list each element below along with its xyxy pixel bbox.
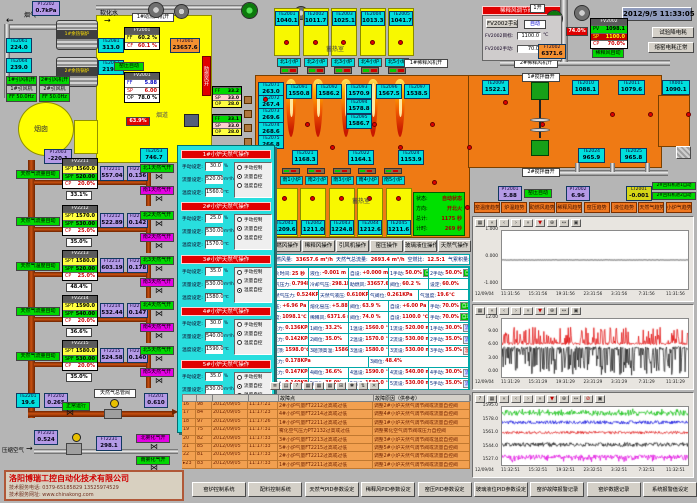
- table-cell: 手动:70.0%自动: [429, 312, 469, 322]
- radio-1[interactable]: [237, 165, 242, 170]
- radio-3[interactable]: [237, 340, 242, 345]
- y-axis-label: 6.00: [475, 342, 498, 347]
- popup-field-input[interactable]: 35.0: [205, 372, 223, 381]
- chart-toolbar-icon-‹[interactable]: ‹: [499, 307, 509, 315]
- fv2001-controller[interactable]: FV2001FF5.88SP6.00OP78.0 %: [124, 72, 160, 103]
- trend-button-5[interactable]: 窑压趋势: [584, 202, 610, 213]
- radio-3[interactable]: [237, 183, 242, 188]
- alarm-dot: [305, 122, 310, 127]
- FV2215-controller[interactable]: FV2215SPT1580.0SPF530.00CP20.0%: [62, 340, 98, 371]
- trend-button-1[interactable]: 窑温度趋势: [474, 202, 500, 213]
- radio-row[interactable]: 流量自控: [235, 277, 271, 286]
- mode-badge[interactable]: 流控: [463, 324, 469, 332]
- alarm-row[interactable]: 22812012/09/0511:17:332#小炉气量FT2212过高或过低调…: [182, 452, 470, 460]
- feeder-controller[interactable]: FF33.1SP33.0OP28.0: [212, 114, 242, 136]
- cell-value: 63.9 %: [362, 304, 380, 309]
- mode-badge[interactable]: 流控: [463, 369, 469, 377]
- radio-row[interactable]: 手动控制: [235, 215, 271, 224]
- field-unit: ℃: [543, 33, 548, 38]
- alarm-dot: [432, 180, 437, 185]
- radio-2[interactable]: [237, 384, 242, 389]
- param-name: FF: [215, 116, 220, 122]
- table-row: 4压力:0.147KPa4阀位:36.6%4温设:1590.0 ℃4流设:540…: [269, 367, 469, 378]
- bottom-button-2[interactable]: 配料控制系统: [248, 482, 302, 497]
- radio-row[interactable]: 手动控制: [235, 320, 271, 329]
- radio-2[interactable]: [237, 331, 242, 336]
- param-value: 33.0: [228, 123, 239, 129]
- tag-TE2091: TE20911550.8: [286, 84, 312, 99]
- alarm-row[interactable]: 21852012/09/0511:17:335#小炉气量FT2215过高或过低调…: [182, 444, 470, 452]
- tag-value: 532.44: [101, 310, 123, 317]
- radio-3[interactable]: [237, 235, 242, 240]
- cell-label: 2手动:: [430, 336, 444, 343]
- popup-field-input[interactable]: 35.0: [205, 267, 223, 276]
- south-gas-valve[interactable]: ⋈: [155, 242, 163, 250]
- chart-toolbar-icon-▦[interactable]: ▦: [475, 219, 485, 227]
- table-cell: 2阀位:35.0%: [309, 334, 349, 344]
- radio-2[interactable]: [237, 174, 242, 179]
- tag-value: 1168.3: [293, 157, 317, 164]
- radio-1[interactable]: [237, 217, 242, 222]
- burner-indicator[interactable]: [307, 168, 325, 174]
- cell-label: 阀位:: [350, 314, 361, 321]
- burner-indicator[interactable]: [282, 168, 300, 174]
- param-name: CP: [65, 318, 71, 325]
- burner-indicator[interactable]: [334, 67, 352, 74]
- alarm-toolbar-icon-?[interactable]: ?: [292, 382, 302, 390]
- cell-value: 50.0%: [445, 271, 462, 276]
- atomize-north-valve[interactable]: ⋈: [150, 443, 158, 451]
- table-cell: 气阀位:0.261KPa: [369, 290, 419, 300]
- mode-badge[interactable]: 流控: [463, 380, 469, 388]
- popup-section-title: 5#小炉天然气操作: [181, 360, 271, 369]
- radio-row[interactable]: 流量自控: [235, 382, 271, 391]
- alarm-toolbar-icon-≣[interactable]: ≣: [270, 382, 280, 390]
- table-cell: 2手动:35.0%流控: [429, 334, 469, 344]
- x-axis-tick: 7:32:51: [639, 467, 655, 472]
- popup-section-title: 3#小炉天然气操作: [181, 255, 271, 264]
- mode-badge[interactable]: 自动: [460, 313, 469, 321]
- popup-field-input[interactable]: 530.00: [205, 385, 223, 394]
- cell-label: 2阀位:: [310, 336, 324, 343]
- south-gas-valve[interactable]: ⋈: [155, 377, 163, 385]
- y-axis-label: 1527.0: [475, 457, 498, 462]
- chart-toolbar-icon-▣[interactable]: ▣: [571, 219, 581, 227]
- tag-TE2092: TE20921586.2: [316, 84, 342, 99]
- tag-value: 1522.1: [483, 87, 508, 94]
- popup-field-input[interactable]: 530.00: [205, 280, 223, 289]
- trend-button-2[interactable]: 炉温趋势: [501, 202, 527, 213]
- alarm-row[interactable]: ▸23832012/09/0511:17:331#小炉气量FT2211过高或过低…: [182, 461, 470, 469]
- cell-label: 1阀位:: [310, 325, 324, 332]
- tag-TE2002: TE20021011.7: [304, 11, 328, 26]
- chart-toolbar-icon-⊕[interactable]: ⊕: [547, 307, 557, 315]
- cell-value: 298.1KPa: [332, 282, 349, 287]
- chart-toolbar-icon-⊘[interactable]: ⊘: [583, 395, 593, 403]
- burner-indicator[interactable]: [280, 67, 298, 74]
- mode-badge[interactable]: 自动: [460, 302, 469, 310]
- power-normal-button[interactable]: 熔窑电耗正常: [648, 42, 694, 53]
- alarm-dot: [396, 196, 401, 201]
- op-button-6[interactable]: 天然气操作: [438, 240, 471, 252]
- tag-value: 298.1: [97, 443, 121, 450]
- south-gas-valve[interactable]: ⋈: [155, 195, 163, 203]
- indicator-red: [398, 69, 404, 72]
- chimney-duct: [74, 120, 98, 154]
- chart-toolbar-icon-«[interactable]: «: [499, 395, 509, 403]
- chart-toolbar-icon-▣[interactable]: ▣: [595, 395, 605, 403]
- radio-row[interactable]: 温度自控: [235, 338, 271, 347]
- field-label: FV2002目标:: [485, 33, 513, 39]
- bottom-button-1[interactable]: 窑炉控制系统: [192, 482, 246, 497]
- stirrer-blade: [530, 128, 550, 132]
- alarm-toolbar-icon-▦[interactable]: ▦: [303, 382, 313, 390]
- alarm-toolbar-icon-⊞[interactable]: ⊞: [336, 382, 346, 390]
- alarm-row[interactable]: 16982012/09/0511:17:212#小炉气量FT2212过高或过低调…: [182, 402, 470, 410]
- FV2211-controller[interactable]: FV2211SPT1560.0SPF520.00CP20.0%: [62, 158, 98, 189]
- burner-indicator[interactable]: [333, 168, 351, 174]
- south-gas-valve[interactable]: ⋈: [155, 287, 163, 295]
- controller-row: SPT1590.0: [63, 302, 97, 310]
- table-cell: 熔化窑压:+5.88 Pa: [309, 301, 349, 311]
- alarm-cell: 11:17:33: [248, 444, 278, 451]
- cell-value: 530.00 m³/h: [405, 337, 429, 342]
- cell-value: 0.794KPa: [292, 282, 309, 287]
- gas-main-valve[interactable]: ⋈: [66, 409, 74, 417]
- company-phone: 技术服务电话: 0379-65185829 13525974529: [9, 484, 179, 491]
- tag-TX001: TX0011090.1: [662, 80, 690, 95]
- mini-button[interactable]: [676, 146, 691, 159]
- radio-label: 温度自控: [244, 287, 262, 293]
- alarm-toolbar-icon-▦[interactable]: ▦: [325, 382, 335, 390]
- field-input[interactable]: 1100.0: [517, 32, 541, 40]
- radio-1[interactable]: [237, 270, 242, 275]
- furnace-throat: [658, 95, 690, 147]
- chart-toolbar-icon-‹[interactable]: ‹: [511, 395, 521, 403]
- burner-indicator[interactable]: [384, 168, 402, 174]
- feeder-controller[interactable]: FF33.2SP33.0OP28.0: [212, 86, 242, 108]
- furnace-status-line: 助燃风量:33657.6 m³/h天然气总流量:2693.4 m³/h空燃比:1…: [268, 254, 470, 265]
- table-cell: 4阀位:36.6%: [309, 368, 349, 378]
- chart-toolbar-icon-▼[interactable]: ▼: [547, 395, 557, 403]
- alarm-toolbar-icon-✱[interactable]: ✱: [347, 382, 357, 390]
- controller-row: SPF530.00: [63, 220, 97, 228]
- param-name: CP: [65, 363, 71, 370]
- param-name: OP: [127, 95, 134, 102]
- bottom-button-9[interactable]: 系统报警值设定: [643, 482, 697, 497]
- chart-toolbar-icon-«[interactable]: «: [487, 219, 497, 227]
- radio-2[interactable]: [237, 279, 242, 284]
- tag-TE2003: TE20031025.1: [332, 11, 356, 26]
- burner-indicator[interactable]: [358, 168, 376, 174]
- popup-field-label: 温度设定:: [182, 241, 206, 248]
- cell-value: 1560.0 ℃: [365, 326, 389, 331]
- alarm-toolbar-icon-▤[interactable]: ▤: [281, 382, 291, 390]
- radio-row[interactable]: 手动控制: [235, 163, 271, 172]
- burner-gas-popup: 1#小炉天然气操作手动设定:30.0%流量设定:520.00m³/h温度设定:1…: [177, 145, 275, 433]
- alarm-cell: 75: [196, 427, 212, 434]
- cell-value: 60.2 %: [402, 282, 420, 287]
- param-value: 60.2 %: [138, 35, 157, 42]
- cell-value: 0.147KPa: [285, 370, 309, 375]
- controller-row: OP28.0: [213, 100, 241, 107]
- tag-value: 1538.5: [405, 91, 429, 98]
- chart-toolbar-icon-⊕[interactable]: ⊕: [547, 219, 557, 227]
- cell-value: 1580.0 ℃: [365, 348, 389, 353]
- north-port-label: 北4小炉: [358, 58, 382, 67]
- company-web[interactable]: 技术服务网址: www.chinakong.com: [9, 491, 179, 498]
- chart-toolbar-icon-↔[interactable]: ↔: [559, 219, 569, 227]
- cell-label: 阀位:: [390, 281, 401, 288]
- popup-field-label: 温度设定:: [182, 346, 206, 353]
- popup-field-input[interactable]: 1590.0: [205, 345, 223, 354]
- tag-FT2214: FT2214532.44: [100, 303, 124, 318]
- cell-label: 设定:: [430, 281, 441, 288]
- chart-toolbar-icon-»[interactable]: »: [523, 219, 533, 227]
- radio-row[interactable]: 温度自控: [235, 181, 271, 190]
- trend-plot-2[interactable]: [501, 318, 689, 378]
- param-name: SPT: [65, 166, 74, 173]
- bottom-button-7[interactable]: 窑炉故障报警记录: [530, 482, 584, 497]
- table-cell: 阀位:74.0 %: [349, 312, 389, 322]
- trend-button-7[interactable]: 天然气趋势: [638, 202, 664, 213]
- bottom-button-8[interactable]: 窑炉数据记录: [587, 482, 641, 497]
- popup-field-label: 流量设定:: [182, 386, 206, 393]
- cell-label: 气温度:: [420, 292, 436, 299]
- mode-badge[interactable]: 温控: [463, 347, 469, 355]
- north-gas-valve[interactable]: ⋈: [155, 173, 163, 181]
- chart-toolbar-icon-↔[interactable]: ↔: [571, 395, 581, 403]
- tag-TE2095: TE20951586.7: [346, 114, 372, 129]
- regenerator-south-label: 蓄热室: [352, 196, 370, 205]
- tag-value: 1211.0: [302, 227, 324, 234]
- radio-row[interactable]: 手动控制: [235, 373, 271, 382]
- mode-badge[interactable]: 自动: [463, 269, 469, 277]
- x-axis-tick: 19:31:56: [556, 291, 575, 296]
- status-seg-value: 12.5:1: [427, 257, 445, 263]
- popup-field-input[interactable]: 1560.0: [205, 188, 223, 197]
- radio-row[interactable]: 温度自控: [235, 286, 271, 295]
- status-row: 状态:自动状态: [416, 194, 462, 204]
- tag-value: 746.7: [141, 155, 167, 162]
- controller-row: FF33.2: [213, 87, 241, 94]
- cell-label: 1温设:: [350, 325, 364, 332]
- chart-toolbar-icon-›[interactable]: ›: [523, 395, 533, 403]
- param-value: 540.00: [76, 311, 95, 318]
- table-row: 温度:1098.1℃稀释风:6371.6 m³/h阀位:74.0 %自设:110…: [269, 311, 469, 322]
- alarm-toolbar-icon-▦[interactable]: ▦: [314, 382, 324, 390]
- popup-field-input[interactable]: 30.0: [205, 162, 223, 171]
- north-gas-valve[interactable]: ⋈: [155, 265, 163, 273]
- controller-row: SPF540.00: [63, 310, 97, 318]
- cell-value: 0.136KPa: [285, 326, 309, 331]
- trend-button-3[interactable]: 助燃风趋势: [529, 202, 555, 213]
- op-button-5[interactable]: 玻璃液位操作: [404, 240, 437, 252]
- alarm-cell: 调整5#小炉天然气调节阀或流量自控阀: [373, 444, 470, 451]
- tag-TE2024: TE20241153.9: [398, 150, 424, 165]
- chart-toolbar-icon-‹[interactable]: ‹: [499, 219, 509, 227]
- radio-3[interactable]: [237, 288, 242, 293]
- tag-value: 1011.7: [305, 18, 327, 25]
- chart-toolbar-icon-▦[interactable]: ▦: [487, 395, 497, 403]
- status-label: 状态:: [416, 194, 428, 204]
- op-button-3[interactable]: 引风机操作: [336, 240, 369, 252]
- alarm-cell: 83: [196, 461, 212, 468]
- popup-field-input[interactable]: 1570.0: [205, 240, 223, 249]
- fv2002-manual-button[interactable]: FV2002手动: [486, 19, 518, 28]
- alarm-cell: 84: [196, 410, 212, 417]
- tag-label: TE2074: [259, 123, 283, 129]
- cell-value: 1098.1℃: [282, 315, 306, 320]
- table-cell: 3压力:0.178KPa: [269, 357, 369, 367]
- butterfly-valve-icon[interactable]: [110, 399, 119, 408]
- bottom-button-5[interactable]: 窑压PID参数设定: [418, 482, 472, 497]
- bottom-button-3[interactable]: 天然气PID参数设定: [305, 482, 359, 497]
- popup-field-input[interactable]: 1580.0: [205, 293, 223, 302]
- tag-value: 965.9: [579, 155, 604, 162]
- fan-icon: [174, 4, 189, 19]
- gas-main-riser: [28, 160, 35, 418]
- test-power-button[interactable]: 试验降电耗: [652, 27, 694, 38]
- radio-row[interactable]: 流量自控: [235, 224, 271, 233]
- param-value: 33.1: [228, 116, 239, 122]
- table-row: 3碹顶:1598.0℃3碹顶高温:1586.7℃3温设:1580.0 ℃3流设:…: [269, 345, 469, 356]
- chart-toolbar-icon-»[interactable]: »: [535, 395, 545, 403]
- controller-row: FF33.1: [213, 115, 241, 122]
- chart-toolbar-icon-⊕[interactable]: ⊕: [559, 395, 569, 403]
- popup-field-input[interactable]: 530.00: [205, 227, 223, 236]
- radio-row[interactable]: 流量自控: [235, 329, 271, 338]
- popup-field-label: 流量设定:: [182, 228, 206, 235]
- cell-label: 3流设:: [390, 347, 404, 354]
- trend-button-8[interactable]: 小炉气趋势: [666, 202, 692, 213]
- tag-value: 1550.8: [287, 91, 311, 98]
- param-value: 1580.0: [76, 348, 95, 355]
- radio-1[interactable]: [237, 322, 242, 327]
- param-value: 5.88: [145, 80, 157, 87]
- radio-2[interactable]: [237, 226, 242, 231]
- alarm-row[interactable]: 19752012/09/0511:17:31雾化空气压力PT2132过高或过低调…: [182, 427, 470, 435]
- trend-button-4[interactable]: 稀释风趋势: [556, 202, 582, 213]
- tag-value: 19.6: [17, 400, 39, 407]
- datetime-display: 2012/9/5 11:33:05: [622, 7, 692, 21]
- cell-label: 天然气液压:: [320, 292, 346, 299]
- table-row: 2压力:0.142KPa2阀位:35.0%2温设:1570.0 ℃2流设:530…: [269, 333, 469, 344]
- indicator-red: [316, 170, 321, 172]
- chart-toolbar-icon-▣[interactable]: ▣: [571, 307, 581, 315]
- alarm-toolbar-icon-⇅[interactable]: ⇅: [358, 382, 368, 390]
- table-cell: 天然气液压:0.610KPa: [319, 290, 369, 300]
- alarm-toolbar-icon-✕[interactable]: ✕: [369, 382, 379, 390]
- chart-toolbar-icon-›[interactable]: ›: [511, 307, 521, 315]
- popup-field-input[interactable]: 30.0: [205, 319, 223, 328]
- FV2213-controller[interactable]: FV2213SPT1580.0SPF520.00CP25.0%: [62, 250, 98, 281]
- table-cell: 天然气压力:0.524KPa: [269, 290, 319, 300]
- north-gas-valve[interactable]: ⋈: [155, 220, 163, 228]
- x-axis-tick: 11:32:51: [666, 467, 685, 472]
- trend-plot-1[interactable]: [501, 230, 689, 290]
- chart-toolbar-icon-›[interactable]: ›: [511, 219, 521, 227]
- north-gas-valve[interactable]: ⋈: [155, 355, 163, 363]
- radio-row[interactable]: 温度自控: [235, 233, 271, 242]
- north-port-label: 北1小炉: [277, 58, 301, 67]
- controller-row: CP25.0%: [63, 272, 97, 280]
- chart-toolbar-icon-▼[interactable]: ▼: [535, 219, 545, 227]
- bottom-button-4[interactable]: 稀释风PID参数设定: [361, 482, 415, 497]
- x-axis-tick: 19:32:51: [556, 467, 575, 472]
- radio-1[interactable]: [237, 375, 242, 380]
- controller-row: FF5.88: [125, 79, 159, 87]
- south-gas-valve[interactable]: ⋈: [155, 332, 163, 340]
- popup-field-input[interactable]: 520.00: [205, 175, 223, 184]
- status-label: 总计:: [416, 214, 428, 224]
- alarm-row[interactable]: 18972012/09/0511:17:261#小炉气量FT2211过高或过低调…: [182, 419, 470, 427]
- gas-auto-label: 天然气流量自动: [16, 352, 60, 361]
- op-button-2[interactable]: 稀释风操作: [302, 240, 335, 252]
- cell-value: 35.0%: [325, 337, 342, 342]
- chart-toolbar-icon-?[interactable]: ?: [475, 395, 485, 403]
- controller-row: SPT1580.0: [63, 257, 97, 265]
- trend-plot-3[interactable]: [501, 406, 689, 466]
- param-name: SPF: [65, 221, 74, 228]
- atomize-south-valve[interactable]: ⋈: [150, 464, 158, 472]
- tag-value: 1211.6: [388, 227, 410, 234]
- alarm-row[interactable]: 17842012/09/0511:17:234#小炉气量FT2214过高或过低调…: [182, 410, 470, 418]
- alarm-cell: 3#小炉气量FT2213过高或过低: [278, 436, 373, 443]
- cell-value: 520.00 m³/h: [405, 326, 429, 331]
- fv2002-controller[interactable]: FV2002PV1098.1SP1100.0CP70.0%: [590, 18, 628, 49]
- cell-value: 0.261KPa: [387, 293, 413, 298]
- tag-TE2061: TE2061224.0: [6, 38, 32, 53]
- burner-indicator[interactable]: [388, 67, 406, 74]
- radio-row[interactable]: 手动控制: [235, 268, 271, 277]
- FV2212-controller[interactable]: FV2212SPT1570.0SPF530.00CP25.0%: [62, 205, 98, 236]
- mode-badge[interactable]: 流控: [463, 336, 469, 344]
- chart-toolbar-icon-»[interactable]: »: [523, 307, 533, 315]
- chart-toolbar-icon-↔[interactable]: ↔: [559, 307, 569, 315]
- fy2001-controller[interactable]: FY2001FF60.2 %CF60.1 %: [124, 27, 160, 50]
- indicator-red: [371, 69, 377, 72]
- controller-row: CF60.1 %: [125, 42, 159, 50]
- chart-toolbar-icon-▦[interactable]: ▦: [475, 307, 485, 315]
- north-gas-valve[interactable]: ⋈: [155, 310, 163, 318]
- FV2214-controller[interactable]: FV2214SPT1590.0SPF540.00CP20.0%: [62, 295, 98, 326]
- radio-row[interactable]: 流量自控: [235, 172, 271, 181]
- tag-value: 1164.1: [349, 157, 373, 164]
- burner-indicator[interactable]: [307, 67, 325, 74]
- x-axis-tick: 19:31:29: [556, 379, 575, 384]
- feeder-port-icon: [244, 110, 252, 118]
- air-valve-icon[interactable]: [72, 433, 81, 442]
- tag-TE2093: TE20931570.9: [346, 84, 372, 99]
- op-button-4[interactable]: 窑压操作: [370, 240, 403, 252]
- south-port-label: 南3小炉: [331, 176, 354, 185]
- tag-TE2022: TE20221164.1: [348, 150, 374, 165]
- param-name: CP: [593, 41, 599, 48]
- popup-field-input[interactable]: 25.0: [205, 214, 223, 223]
- bottom-button-6[interactable]: 玻璃液位PID参数设定: [474, 482, 528, 497]
- trend-button-6[interactable]: 液位趋势: [611, 202, 637, 213]
- regenerator-label: 蓄热室: [326, 44, 344, 53]
- burner-indicator[interactable]: [361, 67, 379, 74]
- chart-toolbar-icon-«[interactable]: «: [487, 307, 497, 315]
- controller-row: OP28.0: [213, 128, 241, 135]
- alarm-dot: [370, 40, 375, 45]
- popup-field-input[interactable]: 540.00: [205, 332, 223, 341]
- alarm-cell: 82: [196, 436, 212, 443]
- chart-toolbar-icon-▼[interactable]: ▼: [535, 307, 545, 315]
- alarm-row[interactable]: 20822012/09/0511:17:333#小炉气量FT2213过高或过低调…: [182, 436, 470, 444]
